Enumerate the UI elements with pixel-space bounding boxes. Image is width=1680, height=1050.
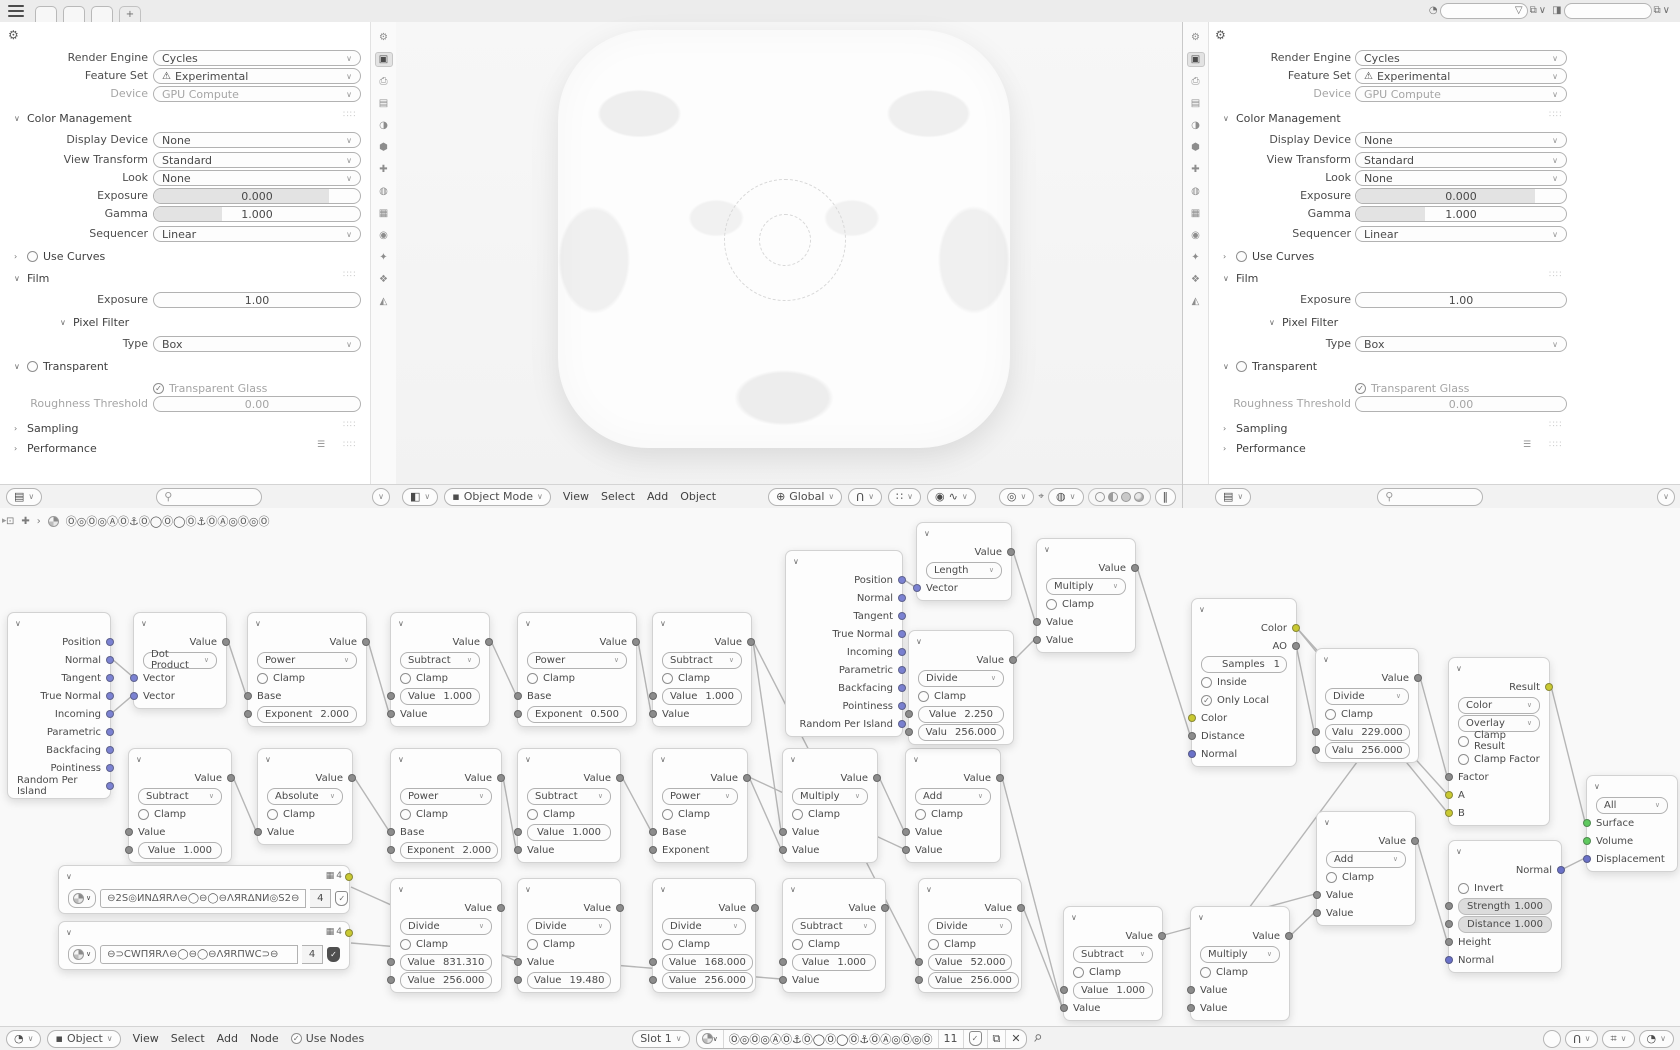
node-row-field[interactable]: Valu256.000 [1316, 741, 1418, 759]
node-row-check[interactable]: Clamp [909, 687, 1013, 705]
node-row-field[interactable]: Exponent2.000 [248, 705, 366, 723]
value-field[interactable]: Exponent2.000 [400, 842, 498, 859]
node-row-drop[interactable]: Power∨ [248, 651, 366, 669]
operation-dropdown[interactable]: Subtract∨ [1073, 946, 1153, 963]
socket-in[interactable] [779, 828, 787, 836]
operation-dropdown[interactable]: Power∨ [400, 788, 492, 805]
node-header[interactable]: ∨ [653, 749, 747, 769]
browse-image-button[interactable]: ∨ [68, 945, 96, 964]
socket-out[interactable] [898, 594, 906, 602]
prop-slider-exposure[interactable]: 0.000 [153, 188, 361, 204]
rendered-shading-icon[interactable] [1134, 492, 1144, 502]
socket-in[interactable] [1583, 819, 1591, 827]
operation-dropdown[interactable]: Divide∨ [918, 670, 1004, 687]
socket-in[interactable] [1313, 891, 1321, 899]
slot-dropdown[interactable]: Slot 1∨ [632, 1030, 689, 1048]
socket-in[interactable] [514, 692, 522, 700]
operation-dropdown[interactable]: Add∨ [1326, 851, 1406, 868]
shader-type-dropdown[interactable]: ▪Object∨ [47, 1030, 120, 1048]
socket-in[interactable] [1060, 1004, 1068, 1012]
view-layer-field[interactable] [1564, 3, 1652, 19]
panel-grip-icon[interactable]: ∷∷ [1549, 110, 1562, 120]
socket-out[interactable] [1285, 932, 1293, 940]
checkbox-icon[interactable] [1325, 709, 1336, 720]
workspace-tab-3[interactable] [91, 6, 113, 22]
chevron-down-icon[interactable]: ∨ [1456, 664, 1462, 673]
prop-slider-exposure[interactable]: 1.00 [1355, 292, 1567, 308]
operation-dropdown[interactable]: Overlay∨ [1458, 715, 1540, 732]
node-row-check[interactable]: Clamp [248, 669, 366, 687]
scene-name-field[interactable]: ▽ [1440, 3, 1528, 19]
node-material-output[interactable]: ∨All∨SurfaceVolumeDisplacement [1586, 775, 1678, 872]
node-row-check[interactable]: Clamp [258, 805, 352, 823]
socket-out[interactable] [1411, 837, 1419, 845]
properties-tab-6[interactable]: ✚ [1187, 162, 1205, 177]
node-row-check[interactable]: Clamp [518, 935, 620, 953]
operation-dropdown[interactable]: Add∨ [915, 788, 991, 805]
node-geometry-1[interactable]: ∨PositionNormalTangentTrue NormalIncomin… [7, 612, 111, 799]
prop-slider-roughness-threshold[interactable]: 0.00 [153, 396, 361, 412]
node-row-field[interactable]: Value256.000 [391, 971, 501, 989]
operation-dropdown[interactable]: Dot Product∨ [143, 652, 217, 669]
socket-out[interactable] [106, 638, 114, 646]
browse-image-button[interactable]: ∨ [68, 889, 96, 908]
operation-dropdown[interactable]: Divide∨ [1325, 688, 1409, 705]
node-header[interactable]: ∨ [8, 613, 110, 633]
checkbox-icon[interactable] [267, 809, 278, 820]
socket-in[interactable] [779, 976, 787, 984]
properties-tab-7[interactable]: ◍ [1187, 184, 1205, 199]
add-workspace-button[interactable]: + [119, 6, 141, 22]
node-row-field[interactable]: Value19.480 [518, 971, 620, 989]
node-image-texture-2[interactable]: ∨▦4∨⊖⊃CWПЯRΛ⊖◯⊖◯⊖ΛЯRПWC⊃⊖4✓ [58, 921, 350, 970]
editor-type-button[interactable]: ▤∨ [1215, 488, 1251, 506]
node-row-slider[interactable]: Distance1.000 [1449, 915, 1561, 933]
prop-dropdown-feature-set[interactable]: ⚠Experimental∨ [1355, 68, 1567, 84]
solid-shading-icon[interactable] [1108, 492, 1118, 502]
chevron-down-icon[interactable]: ∨ [913, 755, 919, 764]
operation-dropdown[interactable]: Divide∨ [662, 918, 746, 935]
socket-out[interactable] [348, 774, 356, 782]
socket-in[interactable] [915, 958, 923, 966]
checkbox-icon[interactable] [928, 939, 939, 950]
value-field[interactable]: Value256.000 [662, 972, 753, 989]
editor-type-button[interactable]: ◧∨ [402, 488, 438, 506]
node-math-power-1[interactable]: ∨ValuePower∨ClampBaseExponent2.000 [247, 612, 367, 727]
mode-dropdown[interactable]: ▪Object Mode∨ [444, 488, 551, 506]
chevron-down-icon[interactable]: ∨ [924, 529, 930, 538]
node-math-subtract-2[interactable]: ∨ValueSubtract∨ClampValue1.000Value [652, 612, 752, 727]
node-row-check[interactable]: Clamp [1064, 963, 1162, 981]
socket-out[interactable] [1545, 683, 1553, 691]
snapping-dropdown[interactable]: U∨ [1565, 1030, 1599, 1048]
node-row-field[interactable]: Value1.000 [1064, 981, 1162, 999]
node-header[interactable]: ∨ [258, 749, 352, 769]
node-row-check[interactable]: Invert [1449, 879, 1561, 897]
node-row-check[interactable]: Clamp [653, 669, 751, 687]
socket-in[interactable] [1445, 902, 1453, 910]
socket-out[interactable] [898, 648, 906, 656]
socket-in[interactable] [125, 828, 133, 836]
section-sampling[interactable]: ›Sampling [14, 420, 79, 436]
prop-dropdown-display-device[interactable]: None∨ [153, 132, 361, 148]
chevron-down-icon[interactable]: ∨ [1539, 6, 1546, 16]
properties-tab-1[interactable]: ▣ [375, 52, 393, 67]
socket-out[interactable] [616, 904, 624, 912]
snap-target-dropdown[interactable]: ∷∨ [888, 488, 921, 506]
operation-dropdown[interactable]: Subtract∨ [400, 652, 480, 669]
node-header[interactable]: ∨ [391, 749, 501, 769]
checkbox-icon[interactable] [138, 809, 149, 820]
properties-tab-9[interactable]: ◉ [375, 228, 393, 243]
operation-dropdown[interactable]: Subtract∨ [527, 788, 611, 805]
node-row-field[interactable]: Value1.000 [518, 823, 620, 841]
operation-dropdown[interactable]: Multiply∨ [792, 788, 868, 805]
fake-user-shield-icon[interactable]: ✓ [327, 947, 340, 962]
node-header[interactable]: ∨ [518, 613, 636, 633]
prop-dropdown-device[interactable]: GPU Compute∨ [153, 86, 361, 102]
use-nodes-checkbox[interactable]: ✓ Use Nodes [291, 1032, 365, 1045]
node-row-drop[interactable]: Divide∨ [653, 917, 755, 935]
node-header[interactable]: ∨ [1449, 658, 1549, 678]
operation-dropdown[interactable]: Power∨ [662, 788, 738, 805]
panel-grip-icon[interactable]: ∷∷ [1549, 270, 1562, 280]
socket-out[interactable] [1557, 866, 1565, 874]
socket-out[interactable] [1158, 932, 1166, 940]
workspace-tab-1[interactable] [35, 6, 57, 22]
node-vector-math-dot[interactable]: ∨ValueDot Product∨VectorVector [133, 612, 227, 709]
panel-grip-icon[interactable]: ∷∷ [343, 110, 356, 120]
socket-in[interactable] [1188, 732, 1196, 740]
node-header[interactable]: ∨ [248, 613, 366, 633]
chevron-down-icon[interactable]: ∨ [66, 872, 72, 881]
section-sampling[interactable]: ›Sampling [1223, 420, 1288, 436]
node-row-check[interactable]: Clamp [518, 669, 636, 687]
overlay-dropdown[interactable]: ◔∨ [1639, 1030, 1674, 1048]
panel-grip-icon[interactable]: ∷∷ [1549, 440, 1562, 450]
socket-out[interactable] [106, 764, 114, 772]
node-header[interactable]: ∨ [906, 749, 1000, 769]
value-field[interactable]: Exponent2.000 [257, 706, 357, 723]
node-row-drop[interactable]: Add∨ [1317, 850, 1415, 868]
checkbox-icon[interactable] [1458, 883, 1469, 894]
checkbox-icon[interactable] [400, 809, 411, 820]
value-field[interactable]: Value52.000 [928, 954, 1012, 971]
socket-in[interactable] [387, 828, 395, 836]
chevron-down-icon[interactable]: ∨ [398, 755, 404, 764]
properties-tab-5[interactable]: ⬢ [1187, 140, 1205, 155]
shader-node-editor[interactable]: ∨PositionNormalTangentTrue NormalIncomin… [0, 508, 1680, 1050]
prop-dropdown-sequencer[interactable]: Linear∨ [1355, 226, 1567, 242]
socket-out[interactable] [497, 774, 505, 782]
chevron-down-icon[interactable]: ∨ [398, 885, 404, 894]
socket-out[interactable] [1414, 674, 1422, 682]
node-row-check[interactable]: Clamp [518, 805, 620, 823]
node-header[interactable]: ∨▦4 [59, 866, 349, 886]
node-row-field[interactable]: Value1.000 [391, 687, 489, 705]
chevron-down-icon[interactable]: ∨ [660, 885, 666, 894]
node-row-drop[interactable]: Divide∨ [919, 917, 1021, 935]
prop-dropdown-type[interactable]: Box∨ [1355, 336, 1567, 352]
operation-dropdown[interactable]: Divide∨ [527, 918, 611, 935]
frame-icon[interactable]: ⊡ [6, 516, 14, 527]
node-math-subtract-6[interactable]: ∨ValueSubtract∨ClampValue1.000Value [1063, 906, 1163, 1021]
node-row-drop[interactable]: Subtract∨ [783, 917, 885, 935]
properties-tab-8[interactable]: ▦ [1187, 206, 1205, 221]
operation-dropdown[interactable]: Multiply∨ [1200, 946, 1280, 963]
node-menu-view[interactable]: View [127, 1032, 165, 1045]
properties-tab-4[interactable]: ◑ [1187, 118, 1205, 133]
node-row-samples[interactable]: Samples1 [1192, 655, 1296, 673]
section-use-curves[interactable]: ›Use Curves [1223, 248, 1314, 264]
socket-in[interactable] [514, 976, 522, 984]
checkbox-icon[interactable] [1458, 736, 1469, 747]
value-field[interactable]: Valu256.000 [918, 724, 1004, 741]
node-row-drop[interactable]: Add∨ [906, 787, 1000, 805]
socket-in[interactable] [244, 692, 252, 700]
list-icon[interactable]: ☰ [317, 440, 326, 450]
properties-tab-2[interactable]: ⎙ [1187, 74, 1205, 89]
fake-user-shield-icon[interactable]: ✓ [964, 1030, 988, 1048]
chevron-down-icon[interactable]: ∨ [525, 619, 531, 628]
node-row-field[interactable]: Value256.000 [653, 971, 755, 989]
node-header[interactable]: ∨ [1192, 599, 1296, 619]
chevron-down-icon[interactable]: ∨ [660, 619, 666, 628]
socket-in[interactable] [1033, 618, 1041, 626]
proportional-edit-dropdown[interactable]: ◉∿∨ [927, 488, 976, 506]
socket-out[interactable] [106, 746, 114, 754]
socket-in[interactable] [254, 828, 262, 836]
section-use-curves[interactable]: ›Use Curves [14, 248, 105, 264]
properties-tab-12[interactable]: ◭ [375, 294, 393, 309]
node-header[interactable]: ∨ [518, 749, 620, 769]
gizmo-icon[interactable]: ⌖ [1038, 492, 1044, 502]
operation-dropdown[interactable]: Multiply∨ [1046, 578, 1126, 595]
node-math-subtract-1[interactable]: ∨ValueSubtract∨ClampValue1.000Value [390, 612, 490, 727]
section-performance[interactable]: ›Performance [14, 440, 97, 456]
node-row-drop[interactable]: Multiply∨ [1037, 577, 1135, 595]
operation-dropdown[interactable]: Color∨ [1458, 697, 1540, 714]
socket-in[interactable] [902, 846, 910, 854]
value-field[interactable]: Value1.000 [792, 954, 876, 971]
node-row-check[interactable]: Clamp Result [1449, 732, 1549, 750]
app-menu-icon[interactable] [8, 5, 24, 17]
node-row-field[interactable]: Value168.000 [653, 953, 755, 971]
material-users-button[interactable]: 11 [939, 1030, 964, 1048]
checkbox-icon[interactable] [662, 809, 673, 820]
value-field[interactable]: Value1.000 [138, 842, 222, 859]
chevron-down-icon[interactable]: ∨ [916, 637, 922, 646]
socket-out[interactable] [898, 576, 906, 584]
node-menu-add[interactable]: Add [211, 1032, 244, 1045]
checkbox-icon[interactable] [1200, 967, 1211, 978]
prop-dropdown-view-transform[interactable]: Standard∨ [153, 152, 361, 168]
node-image-texture-1[interactable]: ∨▦4∨⊖2S◎ИNΔЯRΛ⊖◯⊖◯⊖ΛЯRΔNИ◎S2⊖4✓ [58, 865, 350, 914]
node-math-divide-4[interactable]: ∨ValueDivide∨ClampValue52.000Value256.00… [918, 878, 1022, 993]
value-field[interactable]: Value19.480 [527, 972, 611, 989]
socket-in[interactable] [387, 846, 395, 854]
socket-in[interactable] [514, 958, 522, 966]
prop-dropdown-render-engine[interactable]: Cycles∨ [153, 50, 361, 66]
prop-dropdown-sequencer[interactable]: Linear∨ [153, 226, 361, 242]
socket-in[interactable] [913, 584, 921, 592]
socket-out[interactable] [898, 630, 906, 638]
image-users-button[interactable]: 4 [302, 945, 323, 964]
node-header[interactable]: ∨ [134, 613, 226, 633]
unlink-material-button[interactable]: ✕ [1006, 1030, 1025, 1048]
socket-in[interactable] [905, 728, 913, 736]
node-math-add-1[interactable]: ∨ValueAdd∨ClampValueValue [905, 748, 1001, 863]
node-row-field[interactable]: Exponent2.000 [391, 841, 501, 859]
properties-tab-3[interactable]: ▤ [375, 96, 393, 111]
chevron-down-icon[interactable]: ∨ [265, 755, 271, 764]
prop-dropdown-render-engine[interactable]: Cycles∨ [1355, 50, 1567, 66]
node-header[interactable]: ∨ [917, 523, 1011, 543]
node-header[interactable]: ∨ [653, 879, 755, 899]
browse-material-button[interactable]: ∨ [697, 1030, 724, 1048]
node-math-divide-6[interactable]: ∨ValueDivide∨ClampValu229.000Valu256.000 [1315, 648, 1419, 763]
node-header[interactable]: ∨ [1449, 841, 1561, 861]
node-row-check[interactable]: Clamp [653, 805, 747, 823]
value-field[interactable]: Value168.000 [662, 954, 753, 971]
operation-dropdown[interactable]: Divide∨ [928, 918, 1012, 935]
node-row-field[interactable]: Value1.000 [129, 841, 231, 859]
value-field[interactable]: Value831.310 [400, 954, 492, 971]
value-field[interactable]: Value1.000 [1073, 982, 1153, 999]
node-row-drop[interactable]: Subtract∨ [518, 787, 620, 805]
pause-button[interactable]: ‖ [1155, 488, 1177, 506]
search-input[interactable]: ⚲ [156, 488, 262, 506]
panel-grip-icon[interactable]: ∷∷ [343, 440, 356, 450]
value-field[interactable]: Value1.000 [662, 688, 742, 705]
section-transparent[interactable]: ∨Transparent [14, 358, 108, 374]
node-row-check[interactable]: Clamp [391, 805, 501, 823]
tool-settings-toggle[interactable] [1543, 1030, 1561, 1048]
socket-out[interactable] [106, 674, 114, 682]
prop-slider-roughness-threshold[interactable]: 0.00 [1355, 396, 1567, 412]
editor-type-button[interactable]: ◔∨ [6, 1030, 41, 1048]
socket-out[interactable] [106, 656, 114, 664]
chevron-down-icon[interactable]: ∨ [1199, 605, 1205, 614]
socket-out[interactable] [362, 638, 370, 646]
node-row-check[interactable]: Clamp [919, 935, 1021, 953]
socket-in[interactable] [387, 692, 395, 700]
properties-tab-7[interactable]: ◍ [375, 184, 393, 199]
node-row-drop[interactable]: All∨ [1587, 796, 1677, 814]
node-row-drop[interactable]: Color∨ [1449, 696, 1549, 714]
socket-in[interactable] [130, 674, 138, 682]
node-row-check[interactable]: Clamp [391, 935, 501, 953]
prop-slider-gamma[interactable]: 1.000 [153, 206, 361, 222]
node-math-divide-1[interactable]: ∨ValueDivide∨ClampValue831.310Value256.0… [390, 878, 502, 993]
node-row-check[interactable]: Clamp [1316, 705, 1418, 723]
chevron-down-icon[interactable]: ∨ [1663, 6, 1670, 16]
fractal-object[interactable] [558, 30, 1010, 448]
checkbox-icon[interactable] [1073, 967, 1084, 978]
operation-dropdown[interactable]: Absolute∨ [267, 788, 343, 805]
checkbox-icon[interactable] [1458, 754, 1469, 765]
socket-out[interactable] [898, 612, 906, 620]
properties-tab-5[interactable]: ⬢ [375, 140, 393, 155]
section-film[interactable]: ∨Film [14, 270, 49, 286]
checkbox-icon[interactable] [527, 673, 538, 684]
checkbox-icon[interactable] [400, 673, 411, 684]
socket-in[interactable] [779, 958, 787, 966]
chevron-down-icon[interactable]: ∨ [1594, 782, 1600, 791]
prop-slider-exposure[interactable]: 1.00 [153, 292, 361, 308]
node-math-multiply-1[interactable]: ∨ValueMultiply∨ClampValueValue [782, 748, 878, 863]
socket-out[interactable] [743, 774, 751, 782]
socket-in[interactable] [1312, 728, 1320, 736]
check-transparent-glass[interactable]: ✓Transparent Glass [1355, 380, 1469, 396]
node-row-check[interactable]: Clamp [391, 669, 489, 687]
chevron-down-icon[interactable]: ∨ [1323, 655, 1329, 664]
panel-grip-icon[interactable]: ∷∷ [343, 270, 356, 280]
node-header[interactable]: ∨ [1064, 907, 1162, 927]
node-menu-select[interactable]: Select [165, 1032, 211, 1045]
node-row-check[interactable]: Clamp [129, 805, 231, 823]
socket-in[interactable] [1187, 986, 1195, 994]
section-checkbox[interactable] [1236, 361, 1247, 372]
node-row-drop[interactable]: Absolute∨ [258, 787, 352, 805]
node-row-drop[interactable]: Divide∨ [391, 917, 501, 935]
socket-in[interactable] [1583, 855, 1591, 863]
options-dropdown[interactable]: ∨ [372, 488, 390, 506]
value-slider[interactable]: Strength1.000 [1458, 898, 1552, 915]
node-row-field[interactable]: Value2.250 [909, 705, 1013, 723]
properties-tab-3[interactable]: ▤ [1187, 96, 1205, 111]
properties-tab-11[interactable]: ❖ [1187, 272, 1205, 287]
socket-in[interactable] [1188, 750, 1196, 758]
properties-tab-1[interactable]: ▣ [1187, 52, 1205, 67]
node-math-power-4[interactable]: ∨ValuePower∨ClampBaseExponent [652, 748, 748, 863]
socket-out[interactable] [747, 638, 755, 646]
node-math-subtract-3[interactable]: ∨ValueSubtract∨ClampValueValue1.000 [128, 748, 232, 863]
socket-out[interactable] [106, 728, 114, 736]
socket-in[interactable] [514, 828, 522, 836]
node-row-field[interactable]: Valu229.000 [1316, 723, 1418, 741]
checkbox-icon[interactable] [527, 809, 538, 820]
node-row-check[interactable]: Clamp [906, 805, 1000, 823]
node-math-absolute[interactable]: ∨ValueAbsolute∨ClampValue [257, 748, 353, 845]
socket-out[interactable] [632, 638, 640, 646]
node-ambient-occlusion[interactable]: ∨ColorAOSamples1Inside✓Only LocalColorDi… [1191, 598, 1297, 767]
panel-grip-icon[interactable]: ∷∷ [1549, 420, 1562, 430]
chevron-down-icon[interactable]: ∨ [1044, 545, 1050, 554]
node-math-add-2[interactable]: ∨ValueAdd∨ClampValueValue [1316, 811, 1416, 926]
socket-out[interactable] [1009, 656, 1017, 664]
socket-out[interactable] [227, 774, 235, 782]
snap-toggle[interactable]: U∨ [848, 488, 882, 506]
options-dropdown[interactable]: ∨ [1657, 488, 1675, 506]
socket-in[interactable] [1445, 809, 1453, 817]
node-math-multiply-3[interactable]: ∨ValueMultiply∨ClampValueValue [1036, 538, 1136, 653]
new-layer-icon[interactable]: ⧉ [1654, 6, 1661, 16]
node-row-field[interactable]: Value52.000 [919, 953, 1021, 971]
material-name-field[interactable]: Ⓞ◎Ⓞ◎ⒶⓄ⚓Ⓞ◯Ⓞ◯Ⓞ⚓ⓄⒶ◎Ⓞ◎Ⓞ [724, 1030, 939, 1048]
chevron-down-icon[interactable]: ∨ [793, 557, 799, 566]
socket-in[interactable] [1445, 920, 1453, 928]
workspace-tab-2[interactable] [63, 6, 85, 22]
operation-dropdown[interactable]: Subtract∨ [792, 918, 876, 935]
properties-tab-0[interactable]: ⚙ [1187, 30, 1205, 45]
chevron-down-icon[interactable]: ∨ [66, 928, 72, 937]
image-users-button[interactable]: 4 [310, 889, 331, 908]
socket-in[interactable] [125, 846, 133, 854]
value-field[interactable]: Valu256.000 [1325, 742, 1410, 759]
socket-in[interactable] [649, 976, 657, 984]
operation-dropdown[interactable]: Power∨ [527, 652, 627, 669]
